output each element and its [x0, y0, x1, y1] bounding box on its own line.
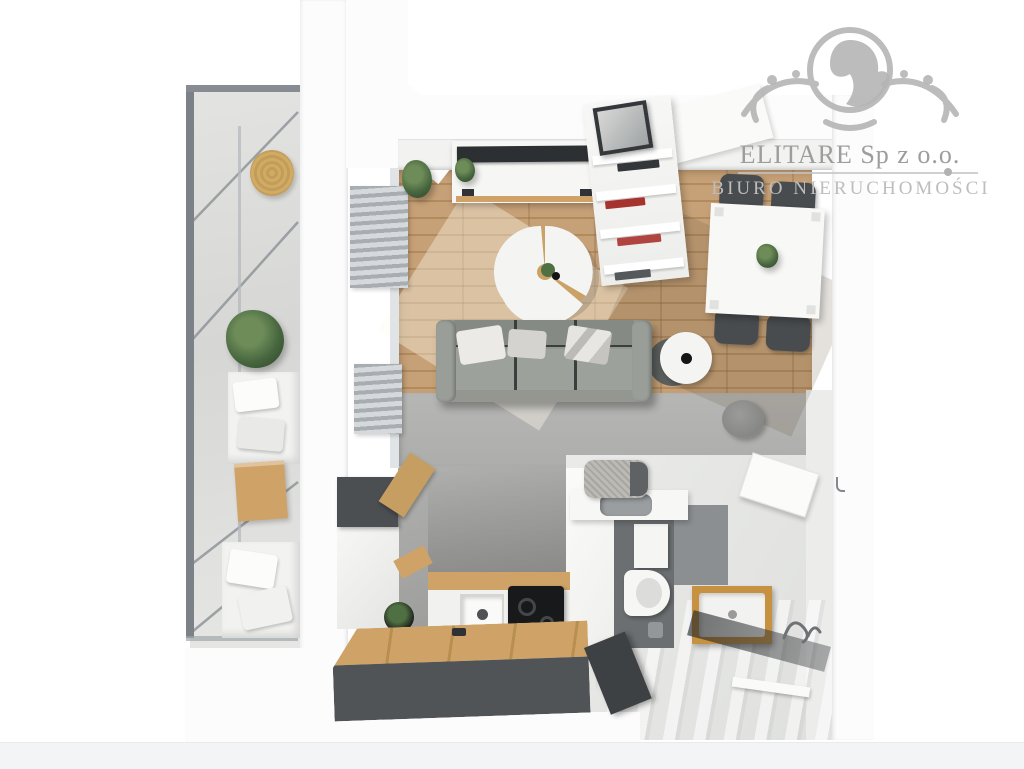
divider-dot: [944, 168, 952, 176]
divider-line: [738, 172, 978, 174]
bench-cushion: [237, 585, 293, 631]
door-hinge-mark: [836, 477, 845, 492]
table-leg: [709, 300, 718, 309]
bench-cushion: [232, 377, 279, 412]
straw-pouf: [250, 150, 294, 196]
wall-between-balcony-and-room: [300, 0, 348, 742]
shower-drain: [728, 610, 737, 619]
dining-chair: [765, 314, 811, 352]
sofa-armrest-left: [436, 320, 456, 402]
radiator-lower: [354, 364, 402, 434]
island-front-panel: [333, 657, 591, 722]
pillow-patterned: [564, 325, 613, 365]
balcony-wood-crate: [234, 460, 288, 521]
table-leg: [806, 305, 815, 314]
sink-tap: [452, 628, 466, 636]
bathroom-bin: [648, 622, 663, 638]
table-plant: [756, 243, 779, 268]
console-plant: [455, 158, 475, 182]
apartment-floorplan-render: ELITARE Sp z o.o. BIURO NIERUCHOMOŚCI: [0, 0, 1024, 769]
balcony-bench-upper: [228, 372, 300, 464]
pillow-white: [456, 325, 507, 366]
company-name: ELITARE Sp z o.o.: [710, 140, 990, 170]
console-wood-edge: [456, 196, 600, 202]
dining-table: [705, 203, 825, 319]
side-table-center: [681, 353, 692, 364]
speaker-left: [462, 189, 474, 196]
bathtub-faucet-icon: [778, 604, 824, 646]
balcony-frame-top: [186, 85, 300, 92]
company-tagline: BIURO NIERUCHOMOŚCI: [706, 178, 996, 200]
balcony-plant: [226, 310, 284, 368]
balcony-bench-lower: [222, 542, 300, 638]
bench-cushion: [237, 416, 286, 452]
kitchen-floor-shadow: [428, 470, 568, 580]
bathroom-shelf: [634, 524, 668, 568]
basket-end: [630, 462, 648, 496]
living-room-plant: [402, 160, 432, 198]
lion-crest-icon: [738, 18, 962, 138]
watermark-block: ELITARE Sp z o.o. BIURO NIERUCHOMOŚCI: [700, 18, 1000, 218]
bench-cushion: [226, 548, 279, 589]
round-coffee-table: [492, 220, 602, 330]
floor-pouf: [722, 400, 764, 438]
pillow-gray: [507, 329, 547, 360]
sofa-armrest-right: [632, 320, 652, 402]
image-bottom-strip: [0, 742, 1024, 769]
tv-screen: [457, 145, 599, 162]
framed-picture: [593, 100, 654, 156]
laundry-basket: [584, 460, 648, 498]
toilet-bowl: [636, 578, 662, 608]
speaker-right: [580, 189, 592, 196]
sink-drain: [477, 609, 488, 620]
radiator-upper: [350, 186, 408, 288]
toilet: [624, 570, 670, 616]
burner: [518, 598, 536, 616]
balcony-glass-railing-frame: [186, 86, 194, 638]
sofa: [436, 320, 652, 402]
